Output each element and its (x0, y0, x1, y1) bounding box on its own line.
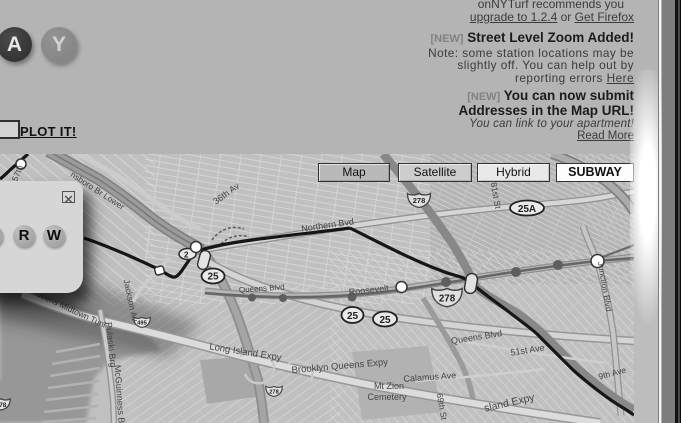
svg-text:25A: 25A (518, 204, 536, 215)
svg-text:2: 2 (184, 251, 189, 260)
svg-text:278: 278 (439, 293, 456, 304)
svg-text:278: 278 (413, 196, 426, 205)
svg-text:Mt Zion: Mt Zion (374, 381, 404, 391)
svg-text:25: 25 (379, 315, 391, 326)
svg-text:278: 278 (0, 402, 7, 409)
svg-text:25: 25 (207, 272, 219, 283)
svg-text:278: 278 (269, 390, 279, 396)
svg-text:25: 25 (347, 311, 359, 322)
svg-text:Cemetery: Cemetery (367, 392, 407, 402)
svg-text:495: 495 (137, 321, 147, 327)
